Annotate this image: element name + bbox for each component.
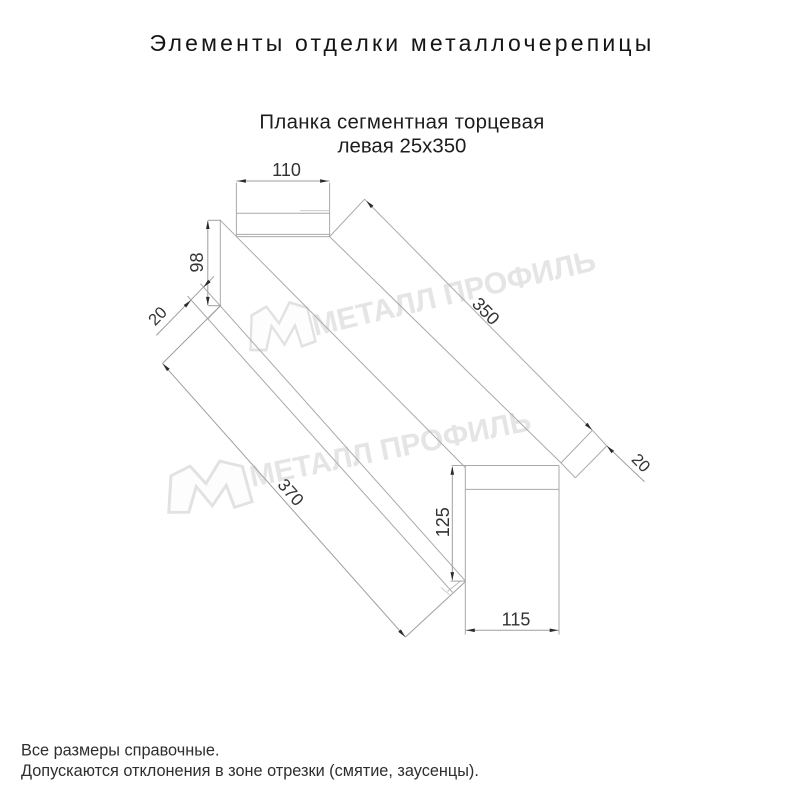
svg-text:Планка сегментная торцевая: Планка сегментная торцевая [259, 112, 544, 134]
svg-text:98: 98 [187, 252, 207, 272]
svg-text:Элементы отделки металлочерепи: Элементы отделки металлочерепицы [149, 30, 654, 56]
svg-text:Все размеры справочные.: Все размеры справочные. [21, 742, 219, 760]
svg-text:110: 110 [272, 160, 301, 180]
svg-text:левая 25х350: левая 25х350 [338, 136, 467, 158]
svg-text:Допускаются отклонения в зоне: Допускаются отклонения в зоне отрезки (с… [21, 762, 479, 780]
svg-text:125: 125 [433, 507, 453, 537]
svg-text:115: 115 [502, 609, 531, 629]
